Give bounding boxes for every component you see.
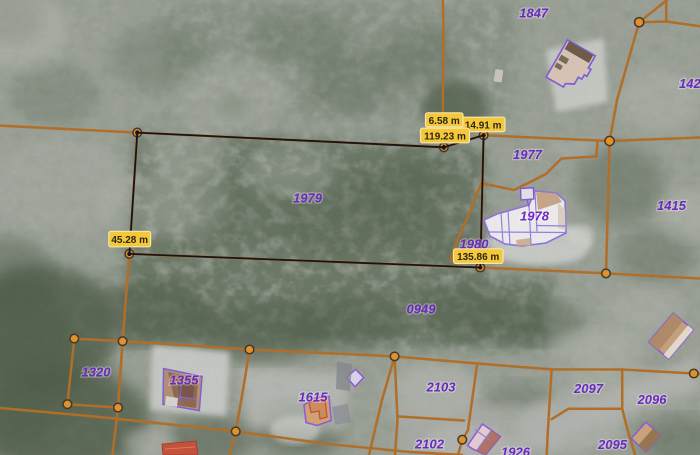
svg-text:0949: 0949 xyxy=(407,301,437,316)
svg-text:135.86 m: 135.86 m xyxy=(457,252,499,263)
svg-text:2102: 2102 xyxy=(414,436,445,451)
svg-text:1615: 1615 xyxy=(299,389,329,404)
svg-text:2103: 2103 xyxy=(426,379,457,394)
svg-text:2095: 2095 xyxy=(597,437,628,452)
svg-text:1847: 1847 xyxy=(519,6,549,21)
svg-text:6.58 m: 6.58 m xyxy=(429,116,460,127)
svg-text:1320: 1320 xyxy=(82,364,112,379)
svg-text:2097: 2097 xyxy=(573,381,604,396)
svg-text:142: 142 xyxy=(679,76,700,91)
svg-text:1977: 1977 xyxy=(513,147,543,162)
svg-text:45.28 m: 45.28 m xyxy=(111,235,148,246)
svg-text:1926: 1926 xyxy=(501,444,531,455)
svg-text:14.91 m: 14.91 m xyxy=(465,120,502,131)
svg-text:2096: 2096 xyxy=(637,392,668,407)
svg-text:1415: 1415 xyxy=(657,198,687,213)
svg-text:119.23 m: 119.23 m xyxy=(424,132,466,143)
svg-text:1978: 1978 xyxy=(520,208,550,223)
svg-text:1355: 1355 xyxy=(170,372,200,387)
svg-text:1979: 1979 xyxy=(293,190,323,205)
